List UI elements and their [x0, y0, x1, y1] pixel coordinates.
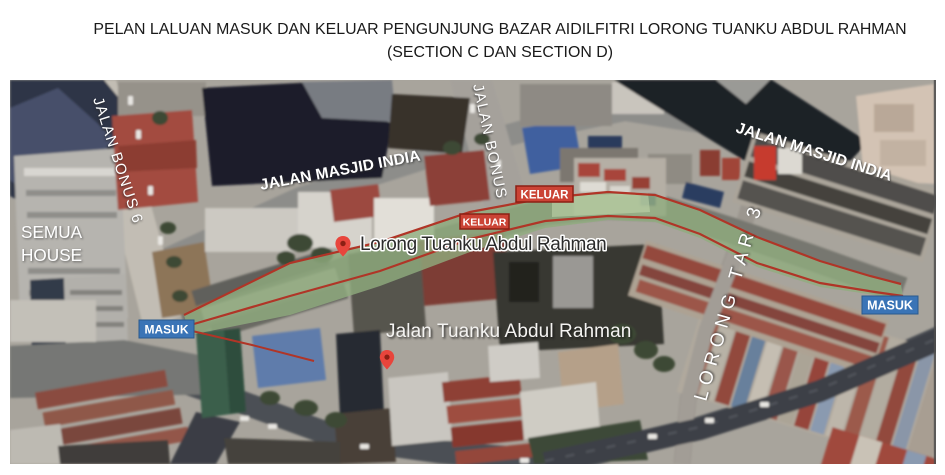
- svg-text:KELUAR: KELUAR: [463, 217, 507, 229]
- svg-text:SEMUA: SEMUA: [21, 222, 83, 242]
- svg-text:MASUK: MASUK: [145, 323, 189, 337]
- svg-text:KELUAR: KELUAR: [521, 190, 570, 202]
- svg-text:Jalan Tuanku Abdul Rahman: Jalan Tuanku Abdul Rahman: [386, 321, 631, 342]
- svg-text:MASUK: MASUK: [867, 299, 913, 313]
- svg-text:HOUSE: HOUSE: [21, 245, 82, 265]
- svg-text:Lorong Tuanku Abdul Rahman: Lorong Tuanku Abdul Rahman: [360, 234, 606, 255]
